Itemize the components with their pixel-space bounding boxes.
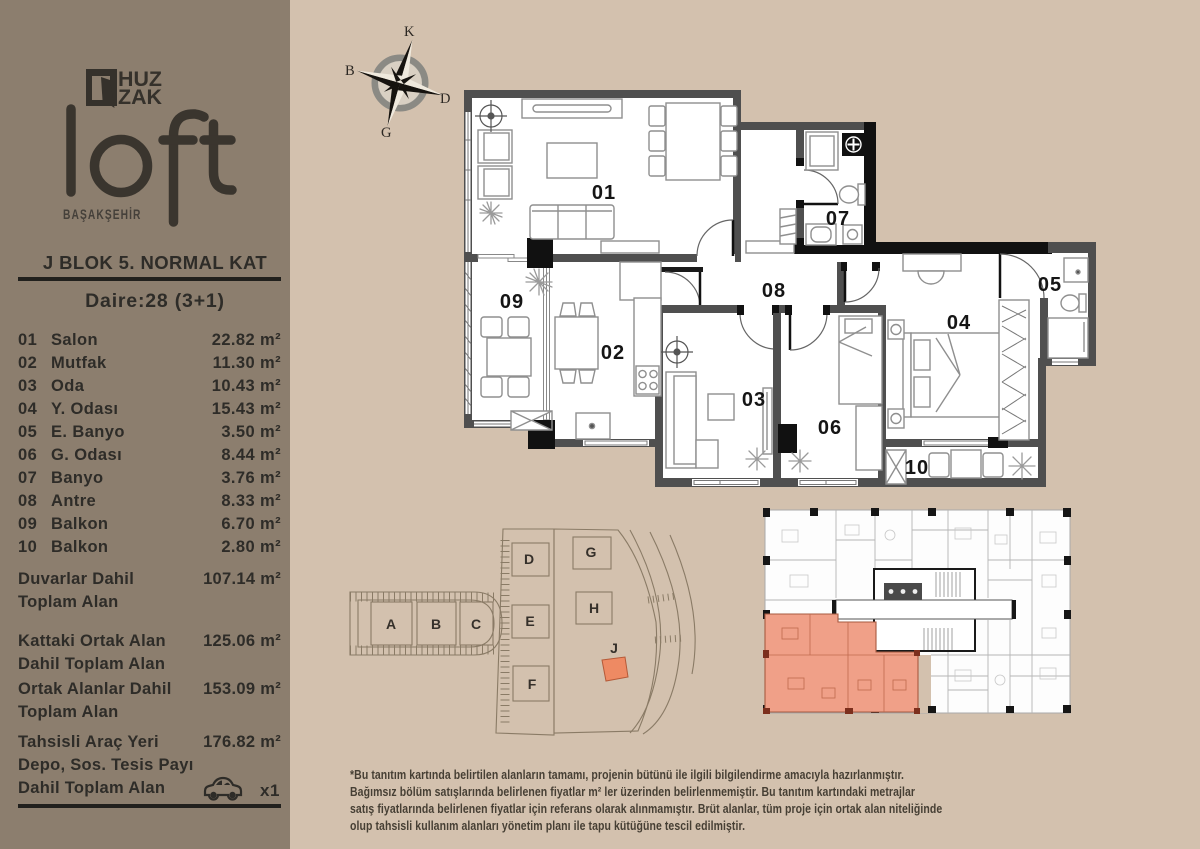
svg-text:ZAK: ZAK bbox=[118, 86, 162, 109]
svg-text:08: 08 bbox=[762, 280, 786, 302]
svg-text:F: F bbox=[528, 676, 537, 692]
svg-text:B: B bbox=[345, 63, 355, 79]
svg-text:K: K bbox=[404, 24, 415, 40]
svg-text:03: 03 bbox=[742, 389, 766, 411]
svg-text:C: C bbox=[471, 616, 481, 632]
svg-text:E: E bbox=[525, 613, 534, 629]
svg-text:A: A bbox=[386, 616, 396, 632]
svg-text:H: H bbox=[589, 600, 599, 616]
svg-text:05: 05 bbox=[1038, 274, 1062, 296]
svg-text:G: G bbox=[381, 125, 392, 141]
svg-text:D: D bbox=[440, 91, 450, 107]
svg-text:02: 02 bbox=[601, 342, 625, 364]
svg-text:07: 07 bbox=[826, 208, 850, 230]
svg-text:04: 04 bbox=[947, 312, 971, 334]
svg-text:10: 10 bbox=[905, 457, 929, 479]
svg-text:09: 09 bbox=[500, 291, 524, 313]
svg-text:J: J bbox=[610, 640, 618, 656]
svg-text:G: G bbox=[586, 544, 597, 560]
svg-text:01: 01 bbox=[592, 182, 616, 204]
svg-text:06: 06 bbox=[818, 417, 842, 439]
svg-text:D: D bbox=[524, 551, 534, 567]
svg-text:B: B bbox=[431, 616, 441, 632]
